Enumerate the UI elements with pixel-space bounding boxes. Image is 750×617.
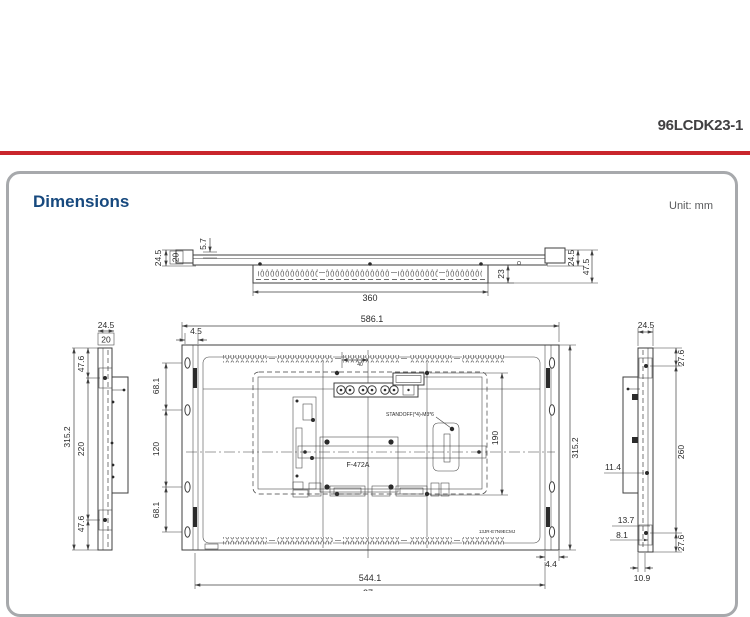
dim-rear-hole-span-bottom: 68.1 [151, 501, 161, 518]
dim-rear-hole-span-mid: 120 [151, 442, 161, 456]
dim-left-edge-hole-top: 47.6 [76, 355, 86, 372]
vent-slots [277, 537, 333, 545]
left-side-view: 24.5 20 47.6 315.2 220 47.6 [62, 320, 128, 550]
dim-rear-panel-height: 190 [490, 431, 500, 445]
vent-slots [462, 537, 505, 545]
vent-slots [462, 355, 505, 363]
dim-right-inset: 11.4 [605, 462, 621, 472]
dim-right-base-width: 10.9 [634, 573, 651, 583]
vent-slots [398, 269, 438, 277]
dim-top-depth-right: 24.5 [566, 249, 576, 266]
vent-slots [409, 355, 452, 363]
dim-rear-width-total: 586.1 [361, 314, 384, 324]
dim-right-depth: 24.5 [638, 320, 655, 330]
dim-right-hole-span: 260 [676, 445, 686, 459]
vent-slots [343, 355, 399, 363]
vent-slots [277, 355, 333, 363]
dim-left-bracket: 20 [101, 335, 111, 345]
top-view: 5.7 24.5 20 360 23 24.5 47.5 [153, 238, 598, 303]
rear-frame [182, 345, 559, 550]
dim-top-depth-total: 47.5 [581, 258, 591, 275]
dimension-drawing: 5.7 24.5 20 360 23 24.5 47.5 24.5 20 [0, 0, 750, 591]
vent-slots [223, 537, 267, 545]
rear-hole-spacing-dims: 68.1 120 68.1 [151, 363, 185, 532]
vent-slots [409, 537, 452, 545]
dim-top-rear-box: 23 [496, 269, 506, 279]
vent-slots [223, 355, 267, 363]
rear-view: F-472A STANDOFF(*4)-M3*6 13JR-E7N9ECMJ 5… [176, 314, 580, 591]
left-view-rear-cover [112, 377, 128, 493]
dim-top-lip: 5.7 [198, 238, 208, 250]
dim-left-hole-span: 220 [76, 442, 86, 456]
standoff-note: STANDOFF(*4)-M3*6 [386, 412, 434, 418]
right-side-view: 24.5 27.6 260 27.6 11.4 13.7 8.1 10.9 [604, 320, 686, 583]
vent-slots [326, 269, 390, 277]
dim-left-edge-hole-bottom: 47.6 [76, 515, 86, 532]
dim-right-edge-hole-bottom: 27.6 [676, 534, 686, 551]
vent-slots [258, 269, 318, 277]
top-view-right-bracket [545, 248, 565, 263]
vent-slots [343, 537, 399, 545]
dim-top-bracket: 20 [171, 253, 181, 263]
dim-rear-center-offset: 40 [357, 362, 363, 368]
dim-left-height-total: 315.2 [62, 426, 72, 448]
vent-slots [446, 269, 482, 277]
dim-rear-flange-right: 4.4 [545, 559, 557, 569]
dim-left-depth: 24.5 [98, 320, 115, 330]
dim-top-vent-width: 360 [362, 293, 377, 303]
dim-rear-flange: 4.5 [190, 326, 202, 336]
right-view-body [638, 348, 653, 552]
board-label: F-472A [347, 462, 370, 469]
module-label: 13JR-E7N9ECMJ [479, 529, 515, 534]
top-connector [393, 373, 424, 385]
dim-right-offset-a: 13.7 [618, 515, 635, 525]
dim-right-offset-b: 8.1 [616, 530, 628, 540]
dim-top-depth-left: 24.5 [153, 249, 163, 266]
dim-rear-height-total: 315.2 [570, 437, 580, 459]
dim-rear-hole-width: 544.1 [359, 573, 382, 583]
dim-right-edge-hole-top: 27.6 [676, 349, 686, 366]
dim-rear-hole-span-top: 68.1 [151, 377, 161, 394]
